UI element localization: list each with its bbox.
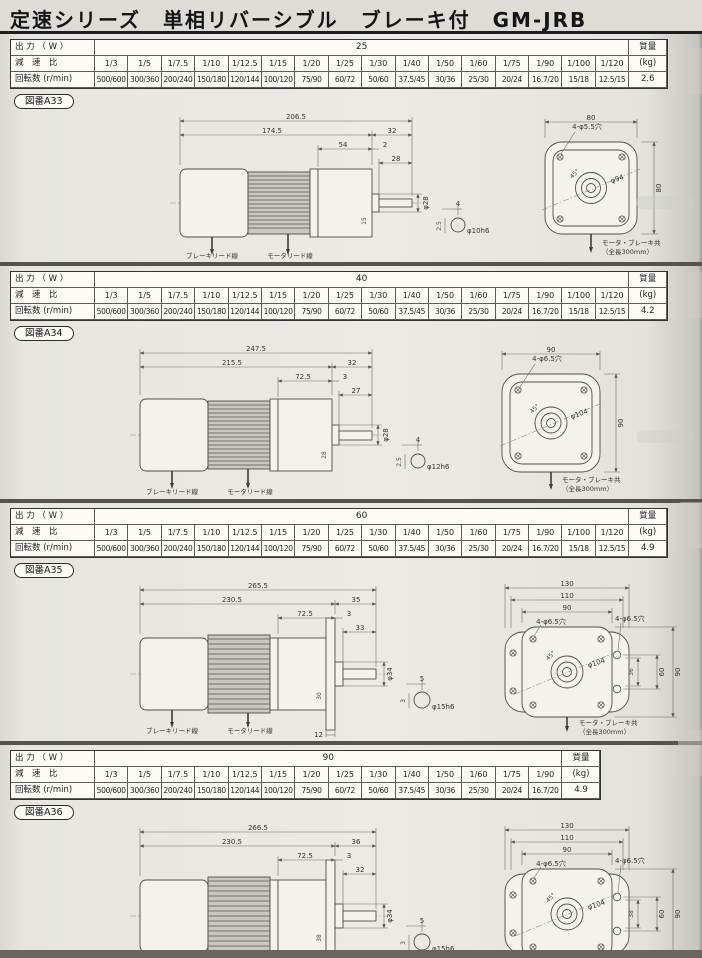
ratio-cell: 1/12.5 — [229, 767, 262, 783]
ratio-cell: 1/90 — [529, 288, 562, 304]
speed-cell: 37.5/45 — [396, 72, 429, 88]
output-shaft — [379, 199, 412, 207]
ratio-cell: 1/30 — [362, 767, 395, 783]
speed-cell: 25/30 — [462, 783, 495, 799]
ratio-cell: 1/90 — [529, 767, 562, 783]
ratio-cell: 1/25 — [329, 525, 362, 541]
dim-rear-width: 80 — [587, 114, 596, 122]
speed-cell: 50/60 — [362, 783, 395, 799]
speed-cell: 20/24 — [496, 72, 529, 88]
dim-shaft-diameter: φ28 — [422, 196, 430, 210]
speed-cell: 150/180 — [195, 304, 228, 320]
ratio-cell: 1/120 — [596, 525, 629, 541]
lead-length-note-1: モータ・ブレーキ共 — [602, 238, 661, 247]
speed-cell: 20/24 — [496, 304, 529, 320]
speed-cell: 200/240 — [162, 783, 195, 799]
mass-unit: (kg) — [629, 56, 667, 72]
spec-table-25w: 出 力 （ W ） 25 質量 減 速 比 1/31/51/7.51/101/1… — [10, 39, 668, 89]
output-shaft — [343, 911, 376, 921]
ratio-label: 減 速 比 — [11, 288, 95, 304]
ratio-cell: 1/7.5 — [162, 767, 195, 783]
dim-overall: 265.5 — [248, 582, 268, 590]
speed-label: 回転数 (r/min) — [11, 541, 95, 557]
dim-tail: 35 — [352, 596, 361, 604]
speed-cell: 37.5/45 — [396, 541, 429, 557]
speed-cell: 15/18 — [562, 72, 595, 88]
lead-length-note-1: モータ・ブレーキ共 — [579, 718, 638, 727]
ratio-cell: 1/40 — [396, 767, 429, 783]
mass-unit: (kg) — [629, 288, 667, 304]
speed-cell: 16.7/20 — [529, 783, 562, 799]
ratio-cell: 1/20 — [295, 525, 328, 541]
speed-cell: 500/600 — [95, 72, 128, 88]
figure-number-badge: 図番A35 — [14, 563, 74, 578]
ghost-tab — [678, 48, 702, 94]
motor-lead-label: モータリード線 — [227, 487, 273, 496]
ratio-cell: 1/5 — [128, 56, 161, 72]
ratio-cell: 1/25 — [329, 56, 362, 72]
ghost-tab — [636, 430, 694, 443]
speed-cell: 500/600 — [95, 304, 128, 320]
side-view-drawing: 266.5 230.5 36 72.5 3 32 φ34 38 12 ブレーキリ… — [120, 820, 465, 958]
ratio-cell: 1/15 — [262, 288, 295, 304]
output-value: 90 — [95, 751, 562, 767]
dim-face-height: 90 — [674, 668, 682, 677]
ratio-cell: 1/20 — [295, 56, 328, 72]
side-view-drawing: 247.5 215.5 32 72.5 3 27 φ28 28 ブレーキリード線… — [120, 341, 450, 496]
speed-cell: 16.7/20 — [529, 541, 562, 557]
ratio-cell: 1/100 — [562, 525, 595, 541]
speed-cell: 15/18 — [562, 304, 595, 320]
speed-cell: 200/240 — [162, 541, 195, 557]
ratio-cell: 1/15 — [262, 767, 295, 783]
hole-callout-2: 4-φ6.5穴 — [615, 614, 645, 623]
dim-key-width: 4 — [416, 436, 421, 444]
dim-key-width: 5 — [420, 675, 424, 683]
mass-header: 質量 — [629, 509, 667, 525]
dim-boss: 28 — [321, 451, 328, 459]
mass-header: 質量 — [629, 40, 667, 56]
dim-flange-width: 130 — [560, 580, 573, 588]
ratio-cell: 1/10 — [195, 767, 228, 783]
mass-header: 質量 — [629, 272, 667, 288]
output-value: 25 — [95, 40, 629, 56]
speed-cell: 300/360 — [128, 72, 161, 88]
figure-number-badge: 図番A33 — [14, 94, 74, 109]
gearhead-inner-face — [510, 382, 592, 464]
speed-cell: 60/72 — [329, 783, 362, 799]
ratio-cell: 1/90 — [529, 56, 562, 72]
output-value: 40 — [95, 272, 629, 288]
output-label: 出 力 （ W ） — [11, 751, 95, 767]
motor-lead-label: モータリード線 — [227, 726, 273, 735]
ratio-cell: 1/10 — [195, 525, 228, 541]
rear-view-drawing: φ94 45° 4-φ5.5穴 80 80 モータ・ブレーキ共 （全長300mm… — [490, 109, 702, 259]
hole-callout: 4-φ6.5穴 — [536, 617, 566, 626]
speed-cell: 37.5/45 — [396, 783, 429, 799]
ratio-label: 減 速 比 — [11, 56, 95, 72]
ratio-cell: 1/50 — [429, 767, 462, 783]
dim-body: 215.5 — [222, 359, 242, 367]
dim-shaft-diameter: φ34 — [386, 909, 394, 923]
dim-tail: 32 — [348, 359, 357, 367]
ratio-cell: 1/60 — [462, 288, 495, 304]
speed-cell: 50/60 — [362, 304, 395, 320]
shaft-boss — [335, 904, 343, 928]
speed-cell: 150/180 — [195, 72, 228, 88]
rear-view-drawing: φ104 45° 4-φ6.5穴 90 90 モータ・ブレーキ共 （全長300m… — [450, 341, 690, 496]
figure-number-badge: 図番A36 — [14, 805, 74, 820]
dim-shaft-diameter: φ28 — [382, 428, 390, 442]
ratio-cell: 1/12.5 — [229, 288, 262, 304]
speed-cell: 50/60 — [362, 541, 395, 557]
ratio-cell: 1/120 — [596, 288, 629, 304]
brake-lead-label: ブレーキリード線 — [186, 251, 239, 260]
speed-cell: 12.5/15 — [596, 72, 629, 88]
lead-wires — [170, 469, 250, 489]
ratio-cell: 1/25 — [329, 288, 362, 304]
ratio-cell: 1/30 — [362, 525, 395, 541]
dim-overall: 266.5 — [248, 824, 268, 832]
lead-length-note-2: （全長300mm） — [602, 247, 653, 256]
ratio-cell: 1/75 — [496, 288, 529, 304]
spec-table-60w: 出 力 （ W ） 60 質量 減 速 比 1/31/51/7.51/101/1… — [10, 508, 668, 558]
dim-mid: 72.5 — [297, 610, 313, 618]
ratio-cell: 1/50 — [429, 525, 462, 541]
ratio-cell: 1/12.5 — [229, 56, 262, 72]
dim-shaft-length: 33 — [356, 624, 365, 632]
speed-cell: 500/600 — [95, 541, 128, 557]
dim-shaft-diameter: φ34 — [386, 667, 394, 681]
section-25w: 出 力 （ W ） 25 質量 減 速 比 1/31/51/7.51/101/1… — [0, 34, 702, 259]
motor-lead-label: モータリード線 — [267, 251, 313, 260]
speed-cell: 100/120 — [262, 304, 295, 320]
hole-callout: 4-φ6.5穴 — [536, 859, 566, 868]
motor-outline — [140, 399, 372, 471]
ghost-tab — [678, 730, 702, 776]
ratio-cell: 1/75 — [496, 525, 529, 541]
mass-value: 4.2 — [629, 304, 667, 320]
rear-lead-wire — [565, 717, 569, 732]
speed-label: 回転数 (r/min) — [11, 304, 95, 320]
rear-view-drawing: φ104 45° 4-φ6.5穴 4-φ6.5穴 130 110 90 90 6… — [465, 820, 702, 958]
drawing-row: 266.5 230.5 36 72.5 3 32 φ34 38 12 ブレーキリ… — [10, 820, 694, 958]
section-40w: 出 力 （ W ） 40 質量 減 速 比 1/31/51/7.51/101/1… — [0, 266, 702, 496]
speed-cell: 300/360 — [128, 541, 161, 557]
side-view-drawing: 206.5 174.5 32 54 2 28 φ28 15 ブレーキリード線 モ… — [160, 109, 490, 259]
ratio-cell: 1/3 — [95, 288, 128, 304]
lead-length-note-2: （全長300mm） — [579, 727, 630, 736]
key-detail: 5 3 φ15h6 — [400, 675, 455, 711]
ratio-cell: 1/10 — [195, 288, 228, 304]
rear-lead-wire — [549, 472, 553, 490]
mass-unit: (kg) — [629, 525, 667, 541]
spec-table-90w: 出 力 （ W ） 90 質量 減 速 比 1/31/51/7.51/101/1… — [10, 750, 601, 800]
hole-callout: 4-φ5.5穴 — [572, 122, 602, 131]
speed-cell: 120/144 — [229, 541, 262, 557]
dim-boss: 38 — [316, 934, 323, 942]
shaft-tolerance: φ12h6 — [427, 463, 450, 471]
motor-outline — [180, 169, 412, 237]
lead-length-note-2: （全長300mm） — [562, 484, 613, 493]
ratio-cell: 1/5 — [128, 767, 161, 783]
speed-cell: 200/240 — [162, 304, 195, 320]
section-90w: 出 力 （ W ） 90 質量 減 速 比 1/31/51/7.51/101/1… — [0, 745, 702, 958]
brake-lead-label: ブレーキリード線 — [146, 487, 199, 496]
ratio-cell: 1/15 — [262, 56, 295, 72]
ratio-cell: 1/15 — [262, 525, 295, 541]
drawing-row: 206.5 174.5 32 54 2 28 φ28 15 ブレーキリード線 モ… — [10, 109, 694, 259]
side-view-drawing: 265.5 230.5 35 72.5 3 33 φ34 30 12 ブレーキリ… — [120, 578, 465, 738]
mass-unit: (kg) — [562, 767, 600, 783]
speed-cell: 150/180 — [195, 541, 228, 557]
ratio-cell: 1/25 — [329, 767, 362, 783]
ratio-cell: 1/10 — [195, 56, 228, 72]
speed-cell: 60/72 — [329, 72, 362, 88]
output-shaft — [343, 669, 376, 679]
ratio-label: 減 速 比 — [11, 525, 95, 541]
speed-cell: 25/30 — [462, 541, 495, 557]
dim-inner-v: 36 — [628, 668, 635, 676]
speed-cell: 100/120 — [262, 541, 295, 557]
key-detail: 4 2.5 φ10h6 — [436, 200, 490, 235]
speed-cell: 30/36 — [429, 72, 462, 88]
mass-value: 2.6 — [629, 72, 667, 88]
speed-cell: 120/144 — [229, 783, 262, 799]
dim-key-width: 5 — [420, 917, 424, 925]
dim-rear-height: 80 — [655, 184, 663, 193]
ratio-cell: 1/5 — [128, 288, 161, 304]
ratio-cell: 1/3 — [95, 767, 128, 783]
speed-cell: 30/36 — [429, 541, 462, 557]
output-value: 60 — [95, 509, 629, 525]
dim-hole-pitch-v: 60 — [658, 668, 666, 677]
key-detail: 4 2.5 φ12h6 — [396, 436, 450, 471]
ratio-cell: 1/30 — [362, 288, 395, 304]
ratio-cell: 1/30 — [362, 56, 395, 72]
ratio-cell: 1/100 — [562, 56, 595, 72]
ratio-cell: 1/40 — [396, 525, 429, 541]
dim-key-width: 4 — [456, 200, 461, 208]
ratio-cell: 1/3 — [95, 56, 128, 72]
mass-header: 質量 — [562, 751, 600, 767]
dim-boss: 15 — [361, 217, 368, 225]
speed-cell: 75/90 — [295, 783, 328, 799]
page-title: 定速シリーズ 単相リバーシブル ブレーキ付 GM-JRB — [0, 0, 702, 34]
dim-face-height: 90 — [674, 910, 682, 919]
key-detail: 5 3 φ15h6 — [400, 917, 455, 953]
ratio-cell: 1/12.5 — [229, 525, 262, 541]
speed-cell: 100/120 — [262, 72, 295, 88]
dim-key-height: 2.5 — [436, 221, 443, 231]
dim-rear-width: 90 — [547, 346, 556, 354]
gearhead-inner-face — [553, 150, 629, 226]
ratio-cell: 1/7.5 — [162, 288, 195, 304]
drawing-row: 265.5 230.5 35 72.5 3 33 φ34 30 12 ブレーキリ… — [10, 578, 694, 738]
dim-key-height: 3 — [400, 699, 407, 703]
ratio-cell: 1/60 — [462, 525, 495, 541]
output-shaft — [339, 431, 372, 440]
speed-label: 回転数 (r/min) — [11, 783, 95, 799]
dim-gap: 3 — [343, 373, 347, 381]
ratio-cell: 1/75 — [496, 56, 529, 72]
ratio-cell: 1/40 — [396, 56, 429, 72]
figure-number-badge: 図番A34 — [14, 326, 74, 341]
section-60w: 出 力 （ W ） 60 質量 減 速 比 1/31/51/7.51/101/1… — [0, 503, 702, 738]
speed-cell: 15/18 — [562, 541, 595, 557]
dim-body: 174.5 — [262, 127, 282, 135]
dim-shaft-length: 27 — [352, 387, 361, 395]
speed-cell: 12.5/15 — [596, 304, 629, 320]
dim-body: 230.5 — [222, 596, 242, 604]
shaft-tolerance: φ15h6 — [432, 703, 455, 711]
hole-callout: 4-φ6.5穴 — [532, 354, 562, 363]
rear-view-drawing: φ104 45° 4-φ6.5穴 4-φ6.5穴 130 110 90 90 6… — [465, 578, 702, 736]
spec-table-40w: 出 力 （ W ） 40 質量 減 速 比 1/31/51/7.51/101/1… — [10, 271, 668, 321]
ratio-cell: 1/120 — [596, 56, 629, 72]
ghost-tab — [678, 272, 702, 318]
dim-body: 230.5 — [222, 838, 242, 846]
dim-mid: 72.5 — [297, 852, 313, 860]
ratio-cell: 1/50 — [429, 56, 462, 72]
speed-label: 回転数 (r/min) — [11, 72, 95, 88]
speed-cell: 50/60 — [362, 72, 395, 88]
speed-cell: 30/36 — [429, 783, 462, 799]
ratio-cell: 1/40 — [396, 288, 429, 304]
dim-gap: 3 — [347, 852, 351, 860]
dim-key-height: 2.5 — [396, 457, 403, 467]
dim-hole-pitch: 110 — [560, 834, 573, 842]
drawing-row: 247.5 215.5 32 72.5 3 27 φ28 28 ブレーキリード線… — [10, 341, 694, 496]
speed-cell: 60/72 — [329, 541, 362, 557]
dim-tail: 36 — [352, 838, 361, 846]
ratio-cell: 1/50 — [429, 288, 462, 304]
dim-overall: 247.5 — [246, 345, 266, 353]
shaft-boss — [372, 194, 379, 212]
dim-boss: 30 — [316, 692, 323, 700]
dim-gap: 3 — [347, 610, 351, 618]
mass-value: 4.9 — [629, 541, 667, 557]
brake-lead-label: ブレーキリード線 — [146, 726, 199, 735]
ratio-cell: 1/20 — [295, 288, 328, 304]
speed-cell: 25/30 — [462, 304, 495, 320]
ratio-cell: 1/60 — [462, 767, 495, 783]
dim-mid: 54 — [339, 141, 348, 149]
speed-cell: 75/90 — [295, 541, 328, 557]
mass-value: 4.9 — [562, 783, 600, 799]
dim-inner-v: 38 — [628, 910, 635, 918]
output-label: 出 力 （ W ） — [11, 509, 95, 525]
catalog-page: 定速シリーズ 単相リバーシブル ブレーキ付 GM-JRB 出 力 （ W ） 2… — [0, 0, 702, 958]
speed-cell: 75/90 — [295, 72, 328, 88]
dim-tail: 32 — [388, 127, 397, 135]
speed-cell: 300/360 — [128, 304, 161, 320]
dim-shaft-length: 32 — [356, 866, 365, 874]
dim-mid: 72.5 — [295, 373, 311, 381]
dim-flange-foot: 12 — [314, 731, 323, 739]
mounting-flange — [326, 618, 335, 730]
shaft-boss — [332, 425, 339, 445]
ratio-cell: 1/100 — [562, 288, 595, 304]
speed-cell: 30/36 — [429, 304, 462, 320]
speed-cell: 37.5/45 — [396, 304, 429, 320]
ghost-tab — [636, 196, 694, 209]
ratio-cell: 1/60 — [462, 56, 495, 72]
speed-cell: 300/360 — [128, 783, 161, 799]
mounting-flange — [326, 860, 335, 958]
dim-hole-pitch-v: 60 — [658, 910, 666, 919]
dim-rear-height: 90 — [617, 419, 625, 428]
output-label: 出 力 （ W ） — [11, 272, 95, 288]
ratio-cell: 1/7.5 — [162, 525, 195, 541]
output-label: 出 力 （ W ） — [11, 40, 95, 56]
shaft-tolerance: φ10h6 — [467, 227, 490, 235]
speed-cell: 200/240 — [162, 72, 195, 88]
dim-shaft-length: 28 — [392, 155, 401, 163]
speed-cell: 16.7/20 — [529, 304, 562, 320]
ratio-cell: 1/75 — [496, 767, 529, 783]
speed-cell: 120/144 — [229, 304, 262, 320]
ratio-label: 減 速 比 — [11, 767, 95, 783]
hole-callout-2: 4-φ6.5穴 — [615, 856, 645, 865]
ratio-cell: 1/7.5 — [162, 56, 195, 72]
page-bottom-edge — [0, 950, 702, 958]
dim-gap: 2 — [383, 141, 387, 149]
speed-cell: 16.7/20 — [529, 72, 562, 88]
speed-cell: 500/600 — [95, 783, 128, 799]
speed-cell: 120/144 — [229, 72, 262, 88]
speed-cell: 25/30 — [462, 72, 495, 88]
speed-cell: 100/120 — [262, 783, 295, 799]
dim-flange-width: 130 — [560, 822, 573, 830]
dim-hole-pitch: 110 — [560, 592, 573, 600]
ghost-tab — [678, 502, 702, 548]
lead-length-note-1: モータ・ブレーキ共 — [562, 475, 621, 484]
speed-cell: 75/90 — [295, 304, 328, 320]
motor-outline — [140, 618, 376, 730]
motor-outline — [140, 860, 376, 958]
dim-face-width: 90 — [563, 846, 572, 854]
ratio-cell: 1/90 — [529, 525, 562, 541]
dim-face-width: 90 — [563, 604, 572, 612]
ratio-cell: 1/3 — [95, 525, 128, 541]
speed-cell: 150/180 — [195, 783, 228, 799]
rear-lead-wire — [589, 234, 593, 253]
ratio-cell: 1/5 — [128, 525, 161, 541]
ratio-cell: 1/20 — [295, 767, 328, 783]
speed-cell: 20/24 — [496, 541, 529, 557]
shaft-boss — [335, 662, 343, 686]
speed-cell: 12.5/15 — [596, 541, 629, 557]
speed-cell: 20/24 — [496, 783, 529, 799]
dim-overall: 206.5 — [286, 113, 306, 121]
speed-cell: 60/72 — [329, 304, 362, 320]
dim-key-height: 3 — [400, 941, 407, 945]
